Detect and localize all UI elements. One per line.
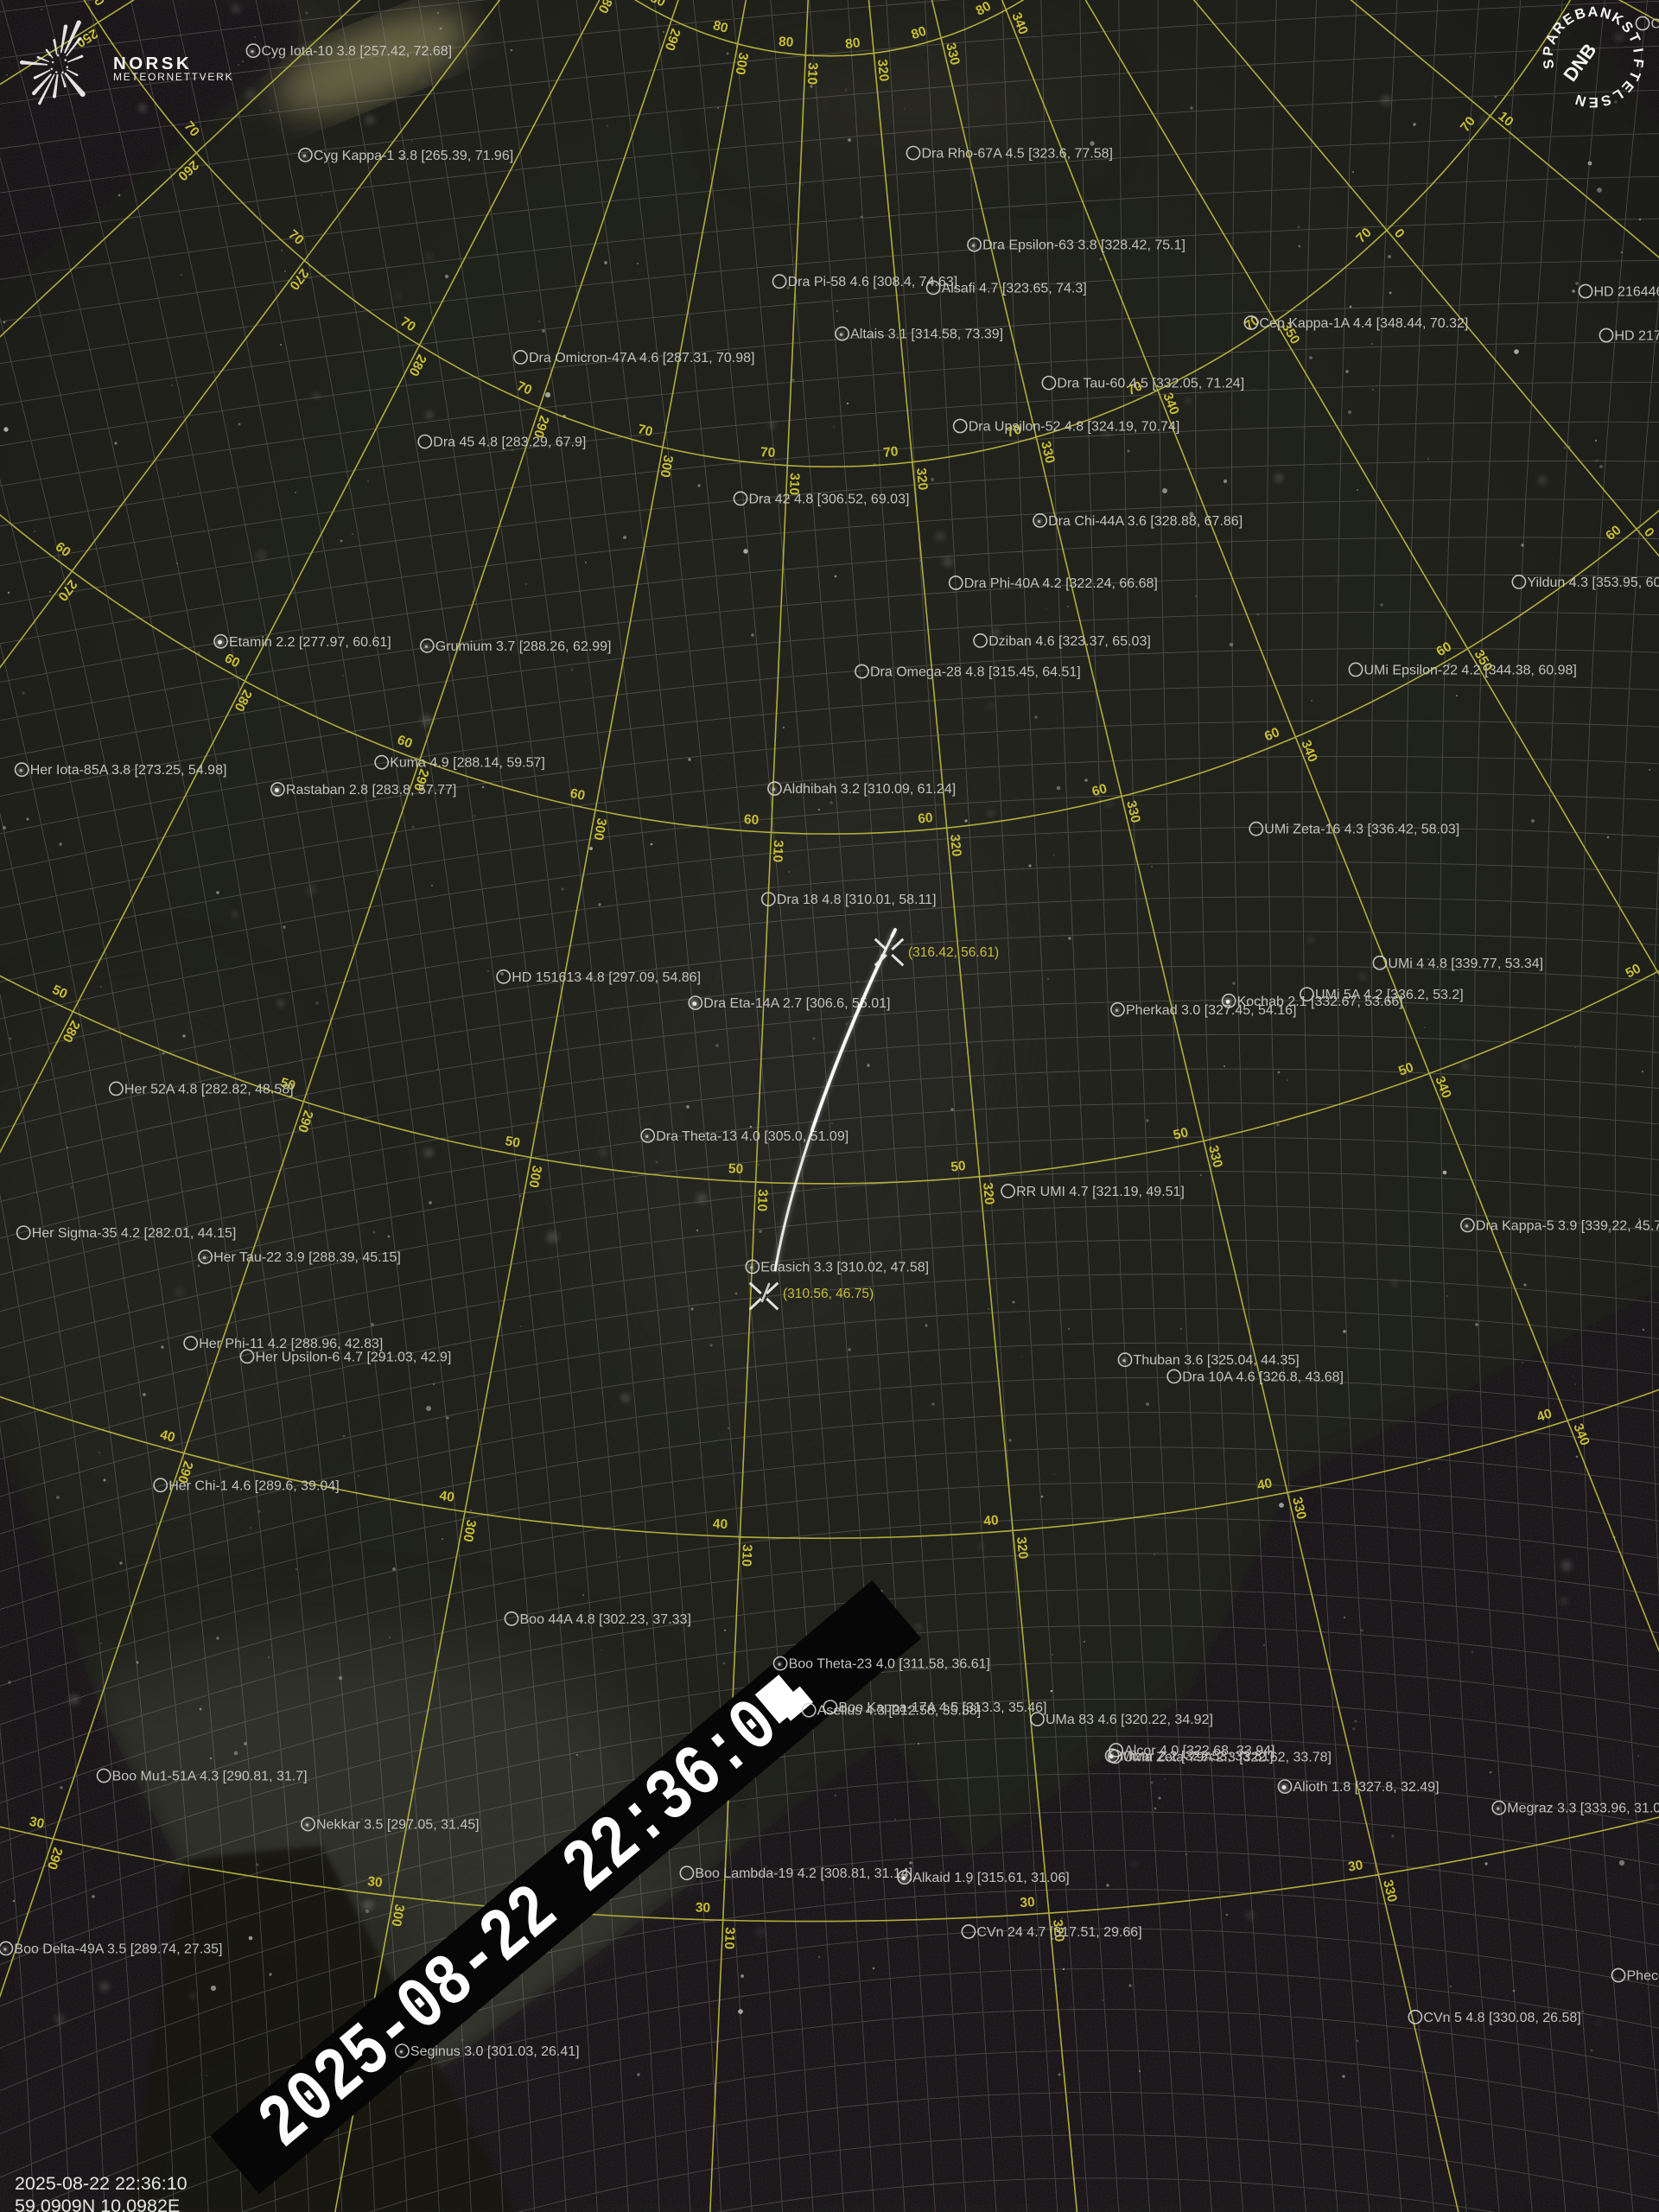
svg-text:Alsafi 4.7 [323.65, 74.3]: Alsafi 4.7 [323.65, 74.3] bbox=[942, 281, 1087, 296]
svg-text:60: 60 bbox=[569, 786, 586, 804]
svg-text:Boo 44A 4.8 [302.23, 37.33]: Boo 44A 4.8 [302.23, 37.33] bbox=[520, 1612, 691, 1627]
svg-text:(310.56, 46.75): (310.56, 46.75) bbox=[783, 1287, 874, 1301]
svg-text:A: A bbox=[1587, 4, 1598, 20]
svg-text:80: 80 bbox=[779, 35, 794, 50]
svg-text:310: 310 bbox=[739, 1544, 754, 1567]
svg-text:UMi 4 4.8 [339.77, 53.34]: UMi 4 4.8 [339.77, 53.34] bbox=[1388, 957, 1543, 971]
svg-text:RR UMI 4.7 [321.19, 49.51]: RR UMI 4.7 [321.19, 49.51] bbox=[1016, 1185, 1185, 1199]
svg-text:2025-08-22 22:36:10: 2025-08-22 22:36:10 bbox=[15, 2173, 188, 2194]
svg-text:Dra Pi-58 4.6 [308.4, 74.63]: Dra Pi-58 4.6 [308.4, 74.63] bbox=[788, 275, 958, 289]
svg-text:Alioth 1.8 [327.8, 32.49]: Alioth 1.8 [327.8, 32.49] bbox=[1294, 1780, 1440, 1795]
svg-text:Aldhibah 3.2 [310.09, 61.24]: Aldhibah 3.2 [310.09, 61.24] bbox=[783, 782, 956, 797]
svg-text:Grumium 3.7 [288.26, 62.99]: Grumium 3.7 [288.26, 62.99] bbox=[435, 639, 612, 654]
svg-text:Dziban 4.6 [323.37, 65.03]: Dziban 4.6 [323.37, 65.03] bbox=[988, 634, 1151, 649]
svg-text:Dra Rho-67A 4.5 [323.6, 77.58]: Dra Rho-67A 4.5 [323.6, 77.58] bbox=[922, 147, 1113, 162]
svg-text:40: 40 bbox=[438, 1489, 455, 1505]
svg-text:Thuban 3.6 [325.04, 44.35]: Thuban 3.6 [325.04, 44.35] bbox=[1134, 1353, 1300, 1368]
svg-text:Cyg Iota-10 3.8 [257.42, 72.68: Cyg Iota-10 3.8 [257.42, 72.68] bbox=[262, 44, 453, 59]
svg-text:Dra Epsilon-63 3.8 [328.42, 75: Dra Epsilon-63 3.8 [328.42, 75.1] bbox=[982, 238, 1185, 253]
svg-text:CVn 5 4.8 [330.08, 26.58]: CVn 5 4.8 [330.08, 26.58] bbox=[1423, 2011, 1580, 2025]
svg-text:Her Sigma-35 4.2 [282.01, 44.1: Her Sigma-35 4.2 [282.01, 44.15] bbox=[32, 1226, 237, 1241]
svg-text:30: 30 bbox=[28, 1815, 45, 1832]
svg-text:Her Upsilon-6 4.7 [291.03, 42.: Her Upsilon-6 4.7 [291.03, 42.9] bbox=[256, 1350, 452, 1364]
svg-text:30: 30 bbox=[1347, 1858, 1364, 1875]
svg-text:320: 320 bbox=[874, 59, 891, 82]
svg-text:Cyg Kappa-1 3.8 [265.39, 71.96: Cyg Kappa-1 3.8 [265.39, 71.96] bbox=[314, 149, 513, 163]
svg-text:Dra Upsilon-52 4.8 [324.19, 70: Dra Upsilon-52 4.8 [324.19, 70.74] bbox=[969, 420, 1180, 435]
svg-text:60: 60 bbox=[744, 812, 760, 828]
svg-text:E: E bbox=[1589, 94, 1599, 110]
svg-text:310: 310 bbox=[721, 1927, 737, 1950]
svg-text:UMa 83 4.6 [320.22, 34.92]: UMa 83 4.6 [320.22, 34.92] bbox=[1046, 1713, 1213, 1727]
svg-text:Dra Kappa-5 3.9 [339.22, 45.75: Dra Kappa-5 3.9 [339.22, 45.75] bbox=[1476, 1218, 1659, 1233]
svg-text:320: 320 bbox=[1014, 1536, 1030, 1560]
svg-text:HD 216446 4.8 [357.9, 67.9]: HD 216446 4.8 [357.9, 67.9] bbox=[1594, 285, 1659, 300]
svg-text:UMi Epsilon-22 4.2 [344.38, 60: UMi Epsilon-22 4.2 [344.38, 60.98] bbox=[1364, 663, 1577, 677]
svg-text:(316.42, 56.61): (316.42, 56.61) bbox=[908, 945, 999, 960]
svg-text:UMi Zeta-16 4.3 [336.42, 58.03: UMi Zeta-16 4.3 [336.42, 58.03] bbox=[1264, 823, 1459, 837]
svg-text:Boo Delta-49A 3.5 [289.74, 27.: Boo Delta-49A 3.5 [289.74, 27.35] bbox=[14, 1942, 222, 1956]
svg-text:320: 320 bbox=[980, 1182, 996, 1205]
svg-text:50: 50 bbox=[504, 1134, 521, 1151]
svg-text:Kuma 4.9 [288.14, 59.57]: Kuma 4.9 [288.14, 59.57] bbox=[390, 756, 545, 771]
svg-text:59.0909N 10.0982E: 59.0909N 10.0982E bbox=[15, 2196, 180, 2212]
svg-text:Nekkar 3.5 [297.05, 31.45]: Nekkar 3.5 [297.05, 31.45] bbox=[316, 1818, 480, 1833]
svg-text:Dra Tau-60 4.5 [332.05, 71.24]: Dra Tau-60 4.5 [332.05, 71.24] bbox=[1057, 377, 1244, 391]
svg-text:Cep 11 4.5 [357.2, 71.9]: Cep 11 4.5 [357.2, 71.9] bbox=[1651, 17, 1659, 32]
svg-text:30: 30 bbox=[696, 1901, 711, 1916]
svg-text:Alkaid 1.9 [315.61, 31.06]: Alkaid 1.9 [315.61, 31.06] bbox=[912, 1871, 1069, 1885]
svg-text:310: 310 bbox=[770, 840, 785, 863]
svg-text:50: 50 bbox=[950, 1159, 967, 1174]
svg-text:40: 40 bbox=[1256, 1476, 1274, 1493]
svg-text:Dra Theta-13 4.0 [305.0, 51.09: Dra Theta-13 4.0 [305.0, 51.09] bbox=[656, 1129, 849, 1144]
svg-text:70: 70 bbox=[760, 445, 776, 461]
svg-text:Her Chi-1 4.6 [289.6, 39.04]: Her Chi-1 4.6 [289.6, 39.04] bbox=[168, 1478, 339, 1493]
svg-text:70: 70 bbox=[882, 444, 899, 461]
svg-text:Rastaban 2.8 [283.8, 57.77]: Rastaban 2.8 [283.8, 57.77] bbox=[286, 783, 456, 798]
svg-text:Edasich 3.3 [310.02, 47.58]: Edasich 3.3 [310.02, 47.58] bbox=[760, 1261, 929, 1275]
svg-text:310: 310 bbox=[754, 1189, 770, 1212]
svg-text:80: 80 bbox=[844, 35, 861, 52]
svg-text:30: 30 bbox=[1020, 1895, 1035, 1910]
svg-text:40: 40 bbox=[983, 1513, 1000, 1529]
svg-text:320: 320 bbox=[913, 467, 930, 491]
svg-text:Boo Kappa-17A 4.5 [313.3, 35.4: Boo Kappa-17A 4.5 [313.3, 35.46] bbox=[838, 1700, 1046, 1715]
svg-text:CVn 24 4.7 [317.51, 29.66]: CVn 24 4.7 [317.51, 29.66] bbox=[976, 1925, 1141, 1940]
svg-text:Dra 42 4.8 [306.52, 69.03]: Dra 42 4.8 [306.52, 69.03] bbox=[749, 492, 910, 506]
svg-text:Dra Chi-44A 3.6 [328.88, 67.86: Dra Chi-44A 3.6 [328.88, 67.86] bbox=[1048, 514, 1243, 529]
svg-text:Her 52A 4.8 [282.82, 48.58]: Her 52A 4.8 [282.82, 48.58] bbox=[124, 1082, 294, 1096]
svg-text:Dra Phi-40A 4.2 [322.24, 66.68: Dra Phi-40A 4.2 [322.24, 66.68] bbox=[964, 576, 1158, 591]
svg-text:HD 217382 4.6 [356.8, 66.4]: HD 217382 4.6 [356.8, 66.4] bbox=[1615, 329, 1659, 344]
svg-text:30: 30 bbox=[366, 1874, 383, 1891]
svg-text:Dra 10A 4.6 [326.8, 43.68]: Dra 10A 4.6 [326.8, 43.68] bbox=[1182, 1370, 1344, 1384]
svg-text:P: P bbox=[1541, 46, 1557, 57]
svg-text:Cep Kappa-1A 4.4 [348.44, 70.3: Cep Kappa-1A 4.4 [348.44, 70.32] bbox=[1259, 316, 1468, 331]
svg-text:Megraz 3.3 [333.96, 31.05]: Megraz 3.3 [333.96, 31.05] bbox=[1507, 1802, 1659, 1816]
svg-text:Dra Omega-28 4.8 [315.45, 64.5: Dra Omega-28 4.8 [315.45, 64.51] bbox=[870, 665, 1081, 680]
svg-text:Boo Mu1-51A 4.3 [290.81, 31.7]: Boo Mu1-51A 4.3 [290.81, 31.7] bbox=[112, 1770, 308, 1784]
svg-text:METEORNETTVERK: METEORNETTVERK bbox=[113, 71, 233, 83]
svg-text:Boo Theta-23 4.0 [311.58, 36.6: Boo Theta-23 4.0 [311.58, 36.61] bbox=[789, 1657, 990, 1672]
svg-text:UMa Zeta-79A 2.3 [322.62, 33.7: UMa Zeta-79A 2.3 [322.62, 33.78] bbox=[1123, 1750, 1332, 1764]
svg-text:Etamin 2.2 [277.97, 60.61]: Etamin 2.2 [277.97, 60.61] bbox=[229, 635, 391, 650]
svg-text:Phecda 2.4 [335.3, 27.6]: Phecda 2.4 [335.3, 27.6] bbox=[1627, 1969, 1659, 1984]
svg-text:HD 151613 4.8 [297.09, 54.86]: HD 151613 4.8 [297.09, 54.86] bbox=[512, 970, 701, 985]
svg-text:320: 320 bbox=[947, 834, 963, 857]
svg-text:50: 50 bbox=[728, 1161, 744, 1177]
svg-text:Pherkad 3.0 [327.45, 54.16]: Pherkad 3.0 [327.45, 54.16] bbox=[1126, 1003, 1296, 1018]
svg-text:Dra 45 4.8 [283.29, 67.9]: Dra 45 4.8 [283.29, 67.9] bbox=[433, 435, 586, 450]
svg-text:Dra Omicron-47A 4.6 [287.31, 7: Dra Omicron-47A 4.6 [287.31, 70.98] bbox=[529, 351, 754, 365]
svg-text:Her Tau-22 3.9 [288.39, 45.15]: Her Tau-22 3.9 [288.39, 45.15] bbox=[213, 1250, 401, 1265]
svg-text:Her Iota-85A 3.8 [273.25, 54.9: Her Iota-85A 3.8 [273.25, 54.98] bbox=[30, 763, 227, 778]
svg-text:Seginus 3.0 [301.03, 26.41]: Seginus 3.0 [301.03, 26.41] bbox=[410, 2044, 580, 2059]
svg-text:40: 40 bbox=[713, 1516, 728, 1532]
svg-text:60: 60 bbox=[918, 810, 934, 827]
svg-text:Altais 3.1 [314.58, 73.39]: Altais 3.1 [314.58, 73.39] bbox=[850, 327, 1003, 342]
svg-text:Dra 18 4.8 [310.01, 58.11]: Dra 18 4.8 [310.01, 58.11] bbox=[777, 893, 937, 907]
svg-text:Boo Lambda-19 4.2 [308.81, 31.: Boo Lambda-19 4.2 [308.81, 31.14] bbox=[695, 1866, 912, 1881]
svg-text:310: 310 bbox=[804, 62, 820, 86]
svg-text:Yildun 4.3 [353.95, 60.75]: Yildun 4.3 [353.95, 60.75] bbox=[1527, 575, 1659, 590]
